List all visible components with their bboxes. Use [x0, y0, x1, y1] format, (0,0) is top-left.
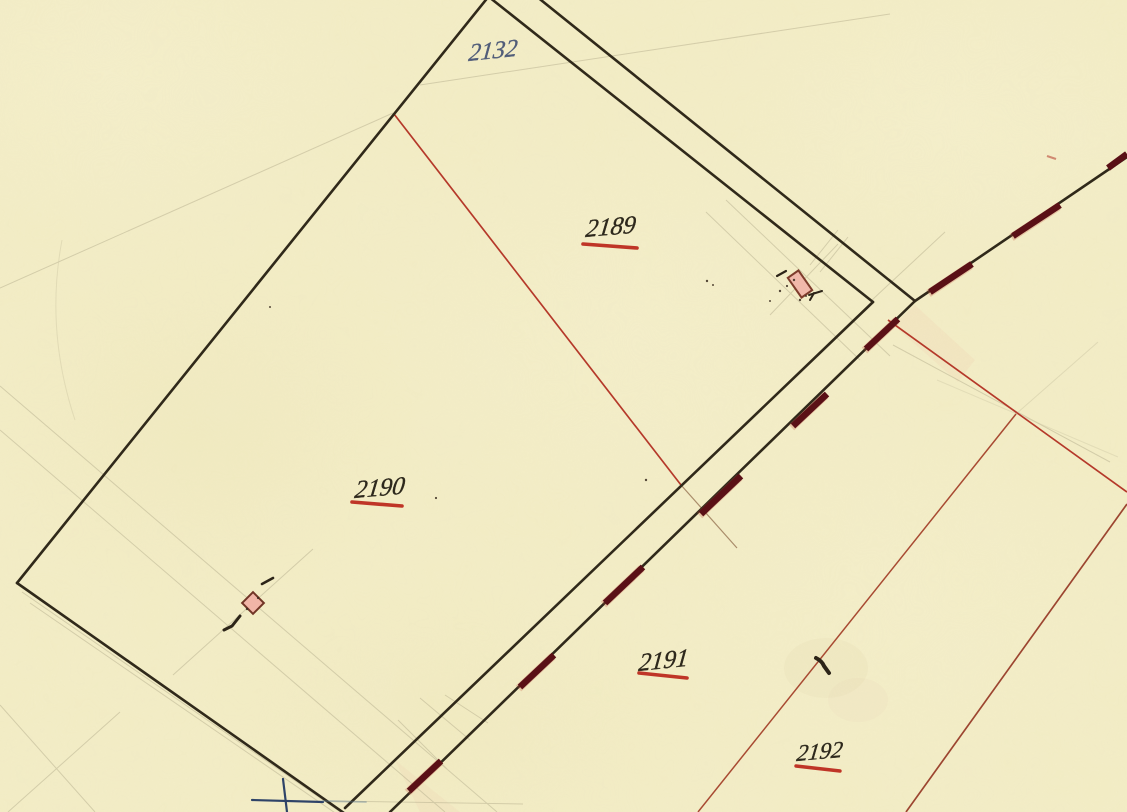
svg-text:2132: 2132 [467, 35, 519, 67]
svg-text:2190: 2190 [353, 472, 407, 504]
svg-text:2189: 2189 [584, 211, 638, 243]
svg-text:2192: 2192 [795, 737, 844, 767]
